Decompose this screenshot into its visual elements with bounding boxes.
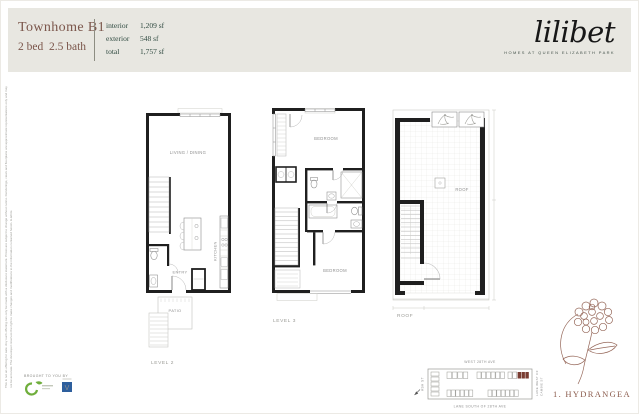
window-band-top xyxy=(305,109,335,112)
developer-logo-icon xyxy=(24,380,58,397)
header-divider xyxy=(94,19,95,61)
kitchen-counter xyxy=(220,216,228,288)
room-label-kitchen: KITCHEN xyxy=(213,241,218,261)
window-band xyxy=(180,114,220,117)
v-logo-letter: V xyxy=(65,385,70,392)
room-label-living: LIVING / DINING xyxy=(170,150,206,155)
powder-room xyxy=(150,249,179,288)
brand-block: lilibet HOMES AT QUEEN ELIZABETH PARK xyxy=(504,17,615,55)
bathroom-ensuite xyxy=(311,170,363,200)
skylight xyxy=(435,178,445,188)
street-label-right-2: CAMBIE ST xyxy=(539,377,543,396)
spec-row: interior 1,209 sf xyxy=(106,21,164,30)
walls xyxy=(146,113,231,293)
floorplan-level2: LIVING / DINING KITCHEN ENTRY PATIO LEVE… xyxy=(126,98,238,370)
planter-icon xyxy=(459,112,484,127)
spec-value: 1,757 sf xyxy=(140,47,164,56)
spec-value: 1,209 sf xyxy=(140,21,164,30)
room-label-patio: PATIO xyxy=(169,308,182,313)
plan-caption-level3: LEVEL 3 xyxy=(273,318,296,324)
floorplan-level3: BEDROOM BEDROOM LEVEL 3 xyxy=(263,98,371,326)
bedroom2-door xyxy=(323,232,335,244)
room-label-bedroom-bottom: BEDROOM xyxy=(323,268,347,273)
entry-door xyxy=(172,276,186,290)
site-map: WEST 28TH AVE LANE SOUTH OF 28TH AVE xyxy=(410,354,564,414)
spec-label: total xyxy=(106,47,140,56)
window-ledge xyxy=(178,109,222,114)
spec-row: exterior 548 sf xyxy=(106,34,164,43)
spec-value: 548 sf xyxy=(140,34,159,43)
room-label-bedroom-top: BEDROOM xyxy=(314,136,338,141)
plant-label: 1. HYDRANGEA xyxy=(548,389,636,399)
brand-tagline: HOMES AT QUEEN ELIZABETH PARK xyxy=(504,50,615,55)
exterior-stairs xyxy=(149,313,168,347)
street-label-left: ASH ST xyxy=(421,377,425,391)
storage-closet xyxy=(275,270,300,288)
stairs xyxy=(149,177,169,232)
area-specs: interior 1,209 sf exterior 548 sf total … xyxy=(106,21,164,60)
floorplan-roof: ROOF ROOF xyxy=(388,98,506,320)
spec-label: interior xyxy=(106,21,140,30)
kitchen-island xyxy=(180,218,201,250)
window-band-bottom xyxy=(310,291,351,294)
roof-deck xyxy=(400,121,480,293)
planter-icon xyxy=(432,112,457,127)
plan-caption-roof: ROOF xyxy=(397,313,413,319)
disclaimer-text: This is not an offering for sale. Any su… xyxy=(4,82,13,388)
page-title: Townhome B1 xyxy=(18,20,105,36)
north-arrow-icon xyxy=(415,390,421,396)
hydrangea-illustration xyxy=(548,288,636,390)
washer-dryer xyxy=(276,167,296,182)
stairs xyxy=(275,208,298,265)
street-label-top: WEST 28TH AVE xyxy=(464,360,496,364)
bathroom-main xyxy=(309,203,362,228)
highlighted-unit xyxy=(518,372,529,379)
room-label-entry: ENTRY xyxy=(173,270,188,275)
room-label-roof: ROOF xyxy=(455,187,468,192)
header-band: Townhome B1 2 bed 2.5 bath interior 1,20… xyxy=(8,8,631,72)
window-band-left xyxy=(273,114,276,156)
page-subtitle: 2 bed 2.5 bath xyxy=(18,41,105,53)
brand-wordmark: lilibet xyxy=(504,17,615,49)
street-label-bottom: LANE SOUTH OF 28TH AVE xyxy=(454,405,507,409)
site-block xyxy=(428,369,532,399)
v-logo-icon: V xyxy=(62,378,74,394)
balcony-ledge xyxy=(277,294,317,301)
floorplan-sheet: Townhome B1 2 bed 2.5 bath interior 1,20… xyxy=(0,0,639,414)
title-block: Townhome B1 2 bed 2.5 bath xyxy=(18,20,105,53)
plan-caption-level2: LEVEL 2 xyxy=(151,360,174,366)
spec-row: total 1,757 sf xyxy=(106,47,164,56)
closet xyxy=(277,114,302,156)
spec-label: exterior xyxy=(106,34,140,43)
entry-closet xyxy=(192,269,205,290)
